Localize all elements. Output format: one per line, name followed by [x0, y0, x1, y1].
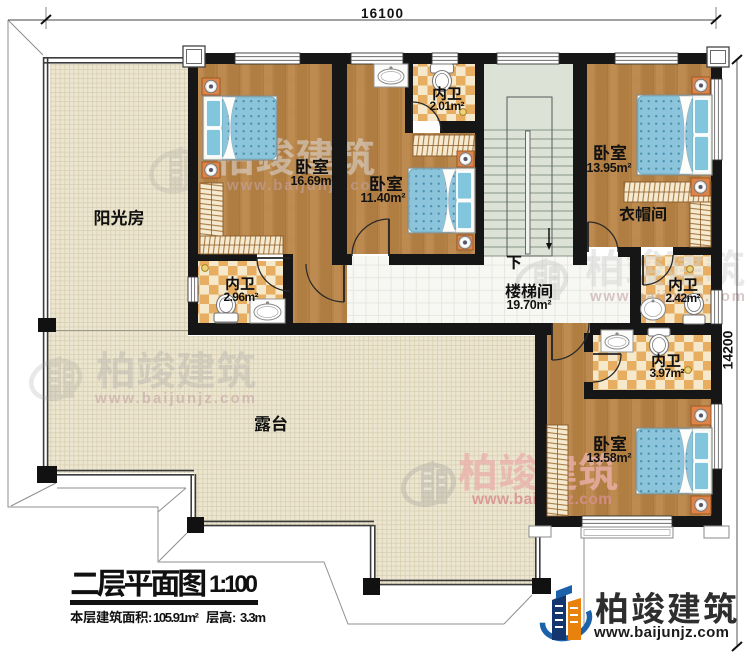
svg-text:19.70m²: 19.70m²	[507, 298, 552, 312]
svg-text:16100: 16100	[361, 6, 403, 21]
svg-text:11.40m²: 11.40m²	[361, 191, 406, 205]
svg-text:3.97m²: 3.97m²	[650, 366, 685, 380]
svg-text:2.01m²: 2.01m²	[430, 99, 465, 113]
svg-text:2.96m²: 2.96m²	[224, 290, 259, 304]
svg-text:www.baijunjz.com: www.baijunjz.com	[593, 624, 729, 641]
svg-text:16.69m²: 16.69m²	[291, 174, 336, 188]
svg-text:13.58m²: 13.58m²	[587, 451, 632, 465]
svg-text:105.91m²: 105.91m²	[153, 610, 200, 625]
svg-text:1:100: 1:100	[209, 571, 258, 598]
svg-text:2.42m²: 2.42m²	[666, 291, 701, 305]
svg-text::: :	[232, 610, 236, 625]
svg-text:3.3m: 3.3m	[240, 610, 266, 625]
svg-text:14200: 14200	[720, 330, 736, 369]
svg-text:13.95m²: 13.95m²	[587, 161, 632, 175]
svg-text::: :	[148, 610, 152, 625]
